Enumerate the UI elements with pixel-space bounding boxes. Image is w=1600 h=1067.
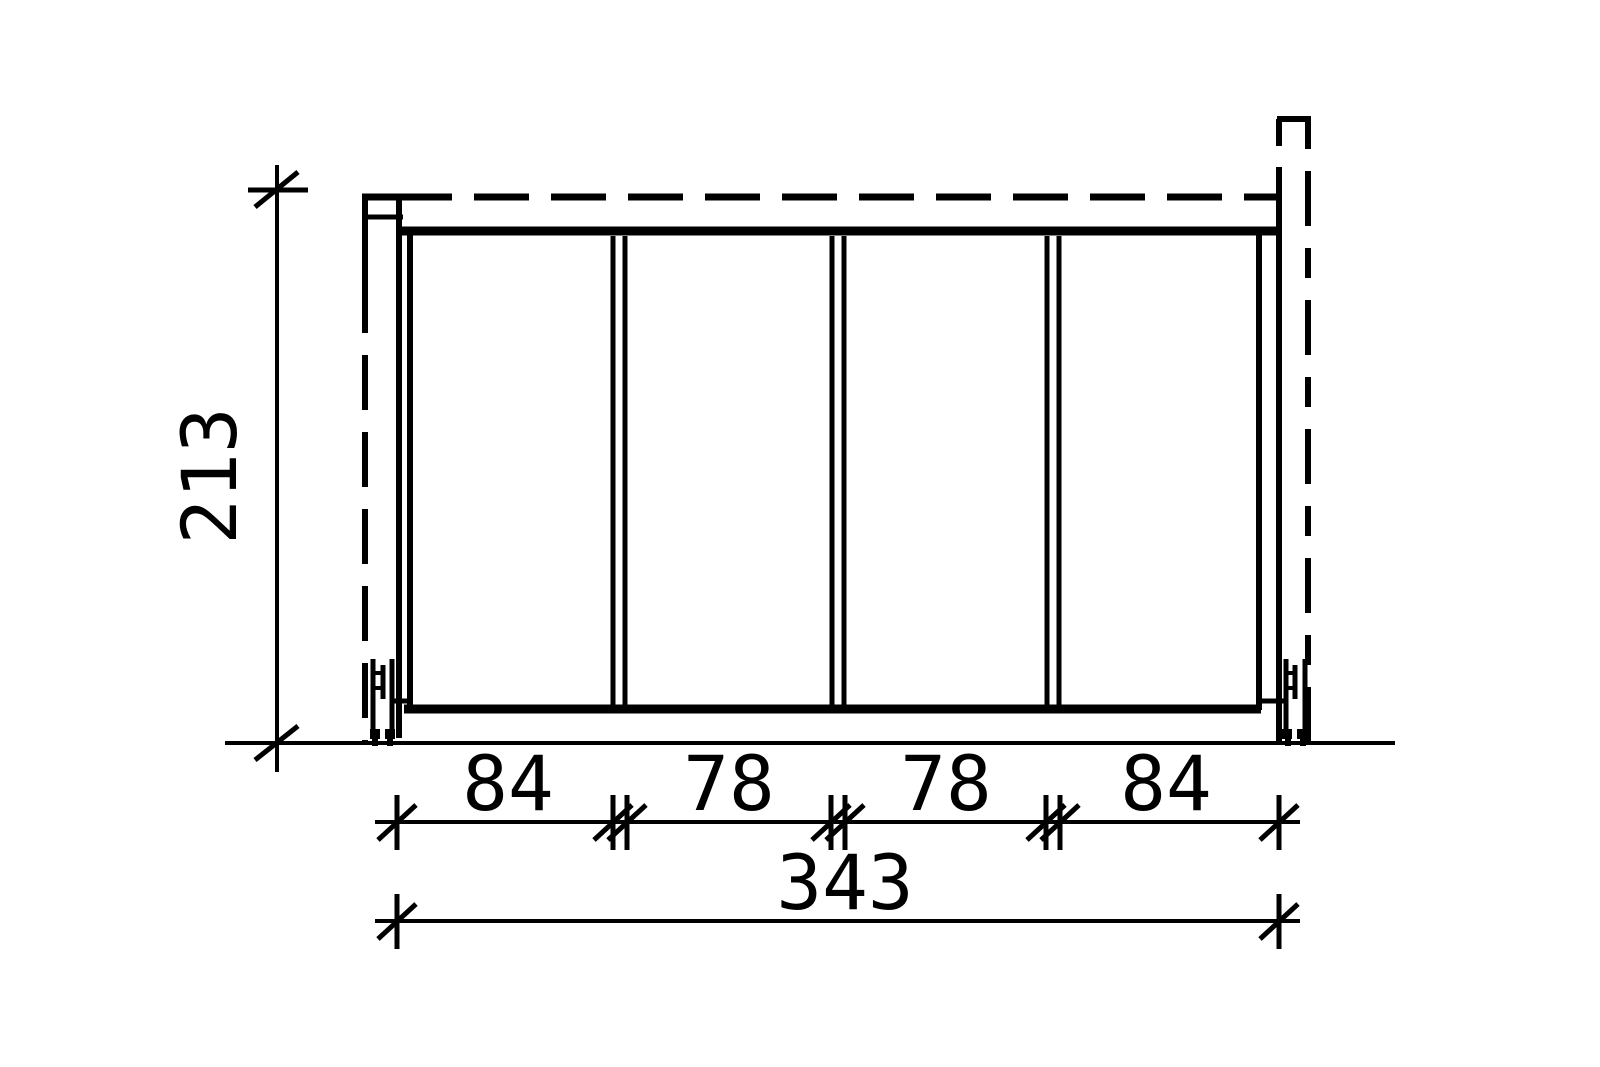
post-anchor-right [1282, 659, 1307, 746]
segment-label-1: 84 [462, 739, 554, 828]
panel-divider-2 [832, 236, 844, 706]
side-wall-elevation-drawing: 213 [0, 0, 1600, 1067]
total-width-dimension-label: 343 [776, 838, 913, 927]
right-post [1277, 119, 1311, 742]
technical-drawing-page: 213 [0, 0, 1600, 1067]
total-width-dimension: 343 [375, 838, 1300, 949]
height-dimension-label: 213 [165, 407, 254, 544]
segment-label-2: 78 [683, 739, 775, 828]
panel-frame [391, 233, 1285, 710]
segment-dimension: 84 78 78 84 [375, 739, 1300, 850]
panel-divider-1 [613, 236, 625, 706]
post-anchor-left [370, 659, 395, 746]
panel-divider-3 [1047, 236, 1059, 706]
segment-label-4: 84 [1120, 739, 1212, 828]
height-dimension: 213 [165, 165, 308, 772]
segment-label-3: 78 [900, 739, 992, 828]
top-beam [362, 197, 1277, 231]
